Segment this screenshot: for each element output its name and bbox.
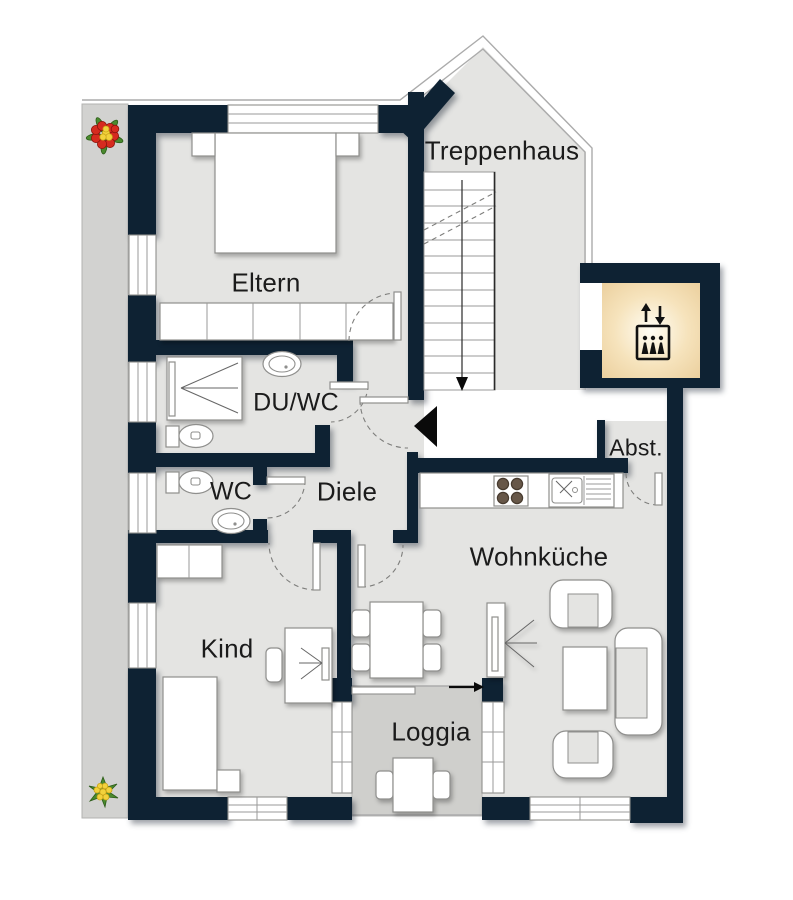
side-walkway — [82, 104, 128, 818]
room-label-eltern: Eltern — [231, 268, 300, 299]
elevator-cabin — [602, 283, 700, 378]
coffee-table — [563, 647, 607, 710]
room-label-loggia: Loggia — [391, 717, 470, 748]
double-bed — [215, 133, 336, 253]
room-label-abstellraum: Abst. — [609, 435, 662, 462]
toilet — [166, 425, 213, 448]
room-label-kind: Kind — [201, 634, 254, 665]
loggia-chair — [376, 771, 393, 799]
tv — [492, 617, 498, 671]
single-bed — [163, 677, 217, 790]
dining-chair — [423, 644, 441, 671]
loggia-table — [393, 758, 433, 812]
door-leaf-eltern — [394, 292, 401, 340]
desk-chair — [266, 648, 282, 682]
door-leaf-entry — [360, 397, 408, 403]
door-leaf-abstellraum — [655, 473, 662, 505]
door-leaf-kind — [313, 543, 320, 590]
washbasin — [263, 352, 301, 377]
door-leaf-wohnkueche — [358, 545, 365, 587]
dining-chair — [352, 610, 370, 637]
dining-table — [370, 602, 423, 678]
floor-plan: Treppenhaus Eltern DU/WC WC Diele Abst. … — [0, 0, 793, 900]
dining-chair — [352, 644, 370, 671]
toilet — [166, 471, 213, 494]
stairs — [424, 172, 496, 391]
desk-lamp — [322, 648, 329, 680]
dining-chair — [423, 610, 441, 637]
room-label-du-wc: DU/WC — [253, 389, 339, 418]
washbasin — [212, 509, 250, 534]
door-leaf-wc — [267, 477, 305, 484]
nightstand — [192, 133, 215, 156]
kitchen-counter — [420, 473, 623, 508]
elevator-door-opening — [580, 283, 602, 350]
room-label-wc: WC — [210, 478, 252, 507]
room-label-treppenhaus: Treppenhaus — [425, 136, 579, 167]
loggia-door-sill — [352, 687, 415, 694]
loggia-chair — [433, 771, 450, 799]
wardrobe — [160, 303, 393, 340]
nightstand — [336, 133, 359, 156]
nightstand — [217, 770, 240, 792]
room-label-wohnkueche: Wohnküche — [470, 542, 609, 573]
room-label-diele: Diele — [317, 477, 377, 508]
floor-plan-drawing — [0, 0, 793, 900]
